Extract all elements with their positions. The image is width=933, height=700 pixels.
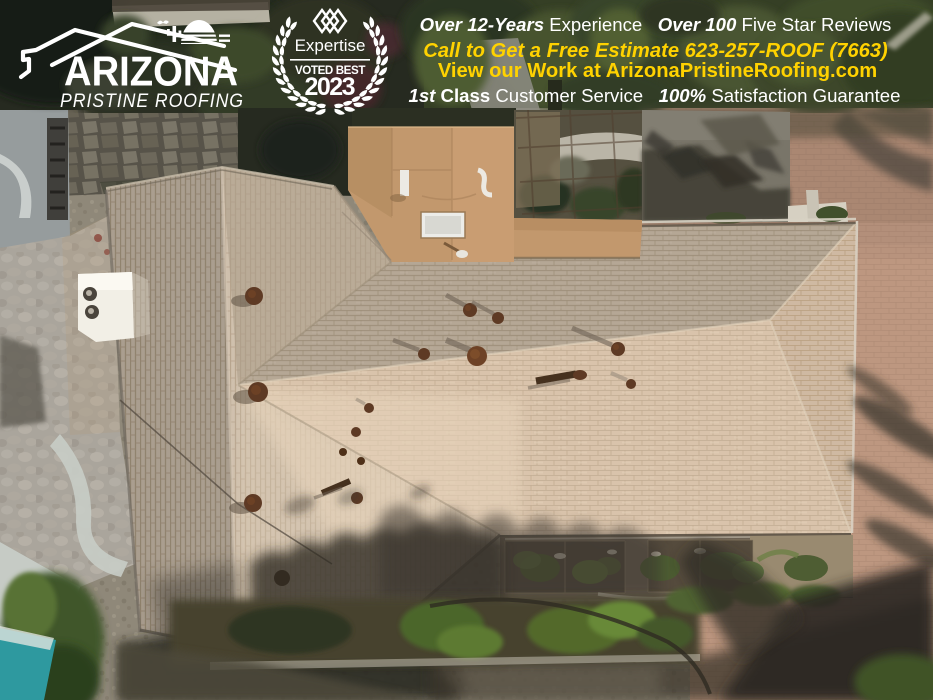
svg-text:PRISTINE ROOFING: PRISTINE ROOFING (60, 91, 244, 112)
svg-text:ARIZONA: ARIZONA (64, 48, 238, 95)
svg-text:Expertise: Expertise (295, 36, 366, 55)
svg-text:2023: 2023 (305, 73, 356, 101)
